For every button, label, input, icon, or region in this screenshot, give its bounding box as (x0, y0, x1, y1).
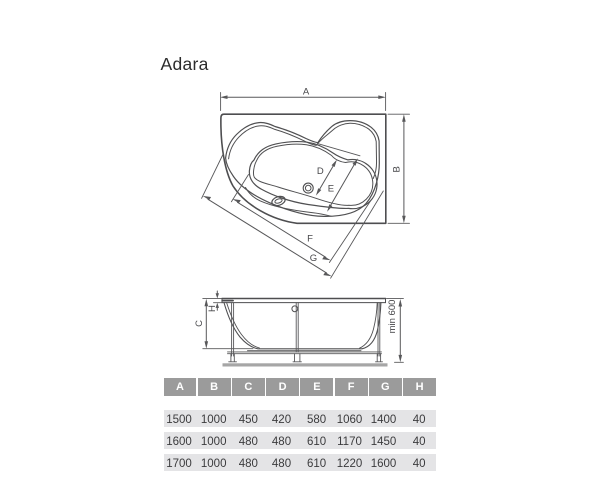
svg-text:G: G (310, 253, 317, 264)
svg-text:H: H (207, 305, 218, 312)
svg-text:D: D (317, 166, 324, 177)
svg-text:min 600: min 600 (387, 300, 398, 334)
svg-text:B: B (392, 166, 403, 172)
svg-text:E: E (328, 183, 334, 194)
svg-text:F: F (307, 234, 313, 245)
svg-text:A: A (303, 87, 310, 98)
svg-text:C: C (194, 320, 205, 327)
